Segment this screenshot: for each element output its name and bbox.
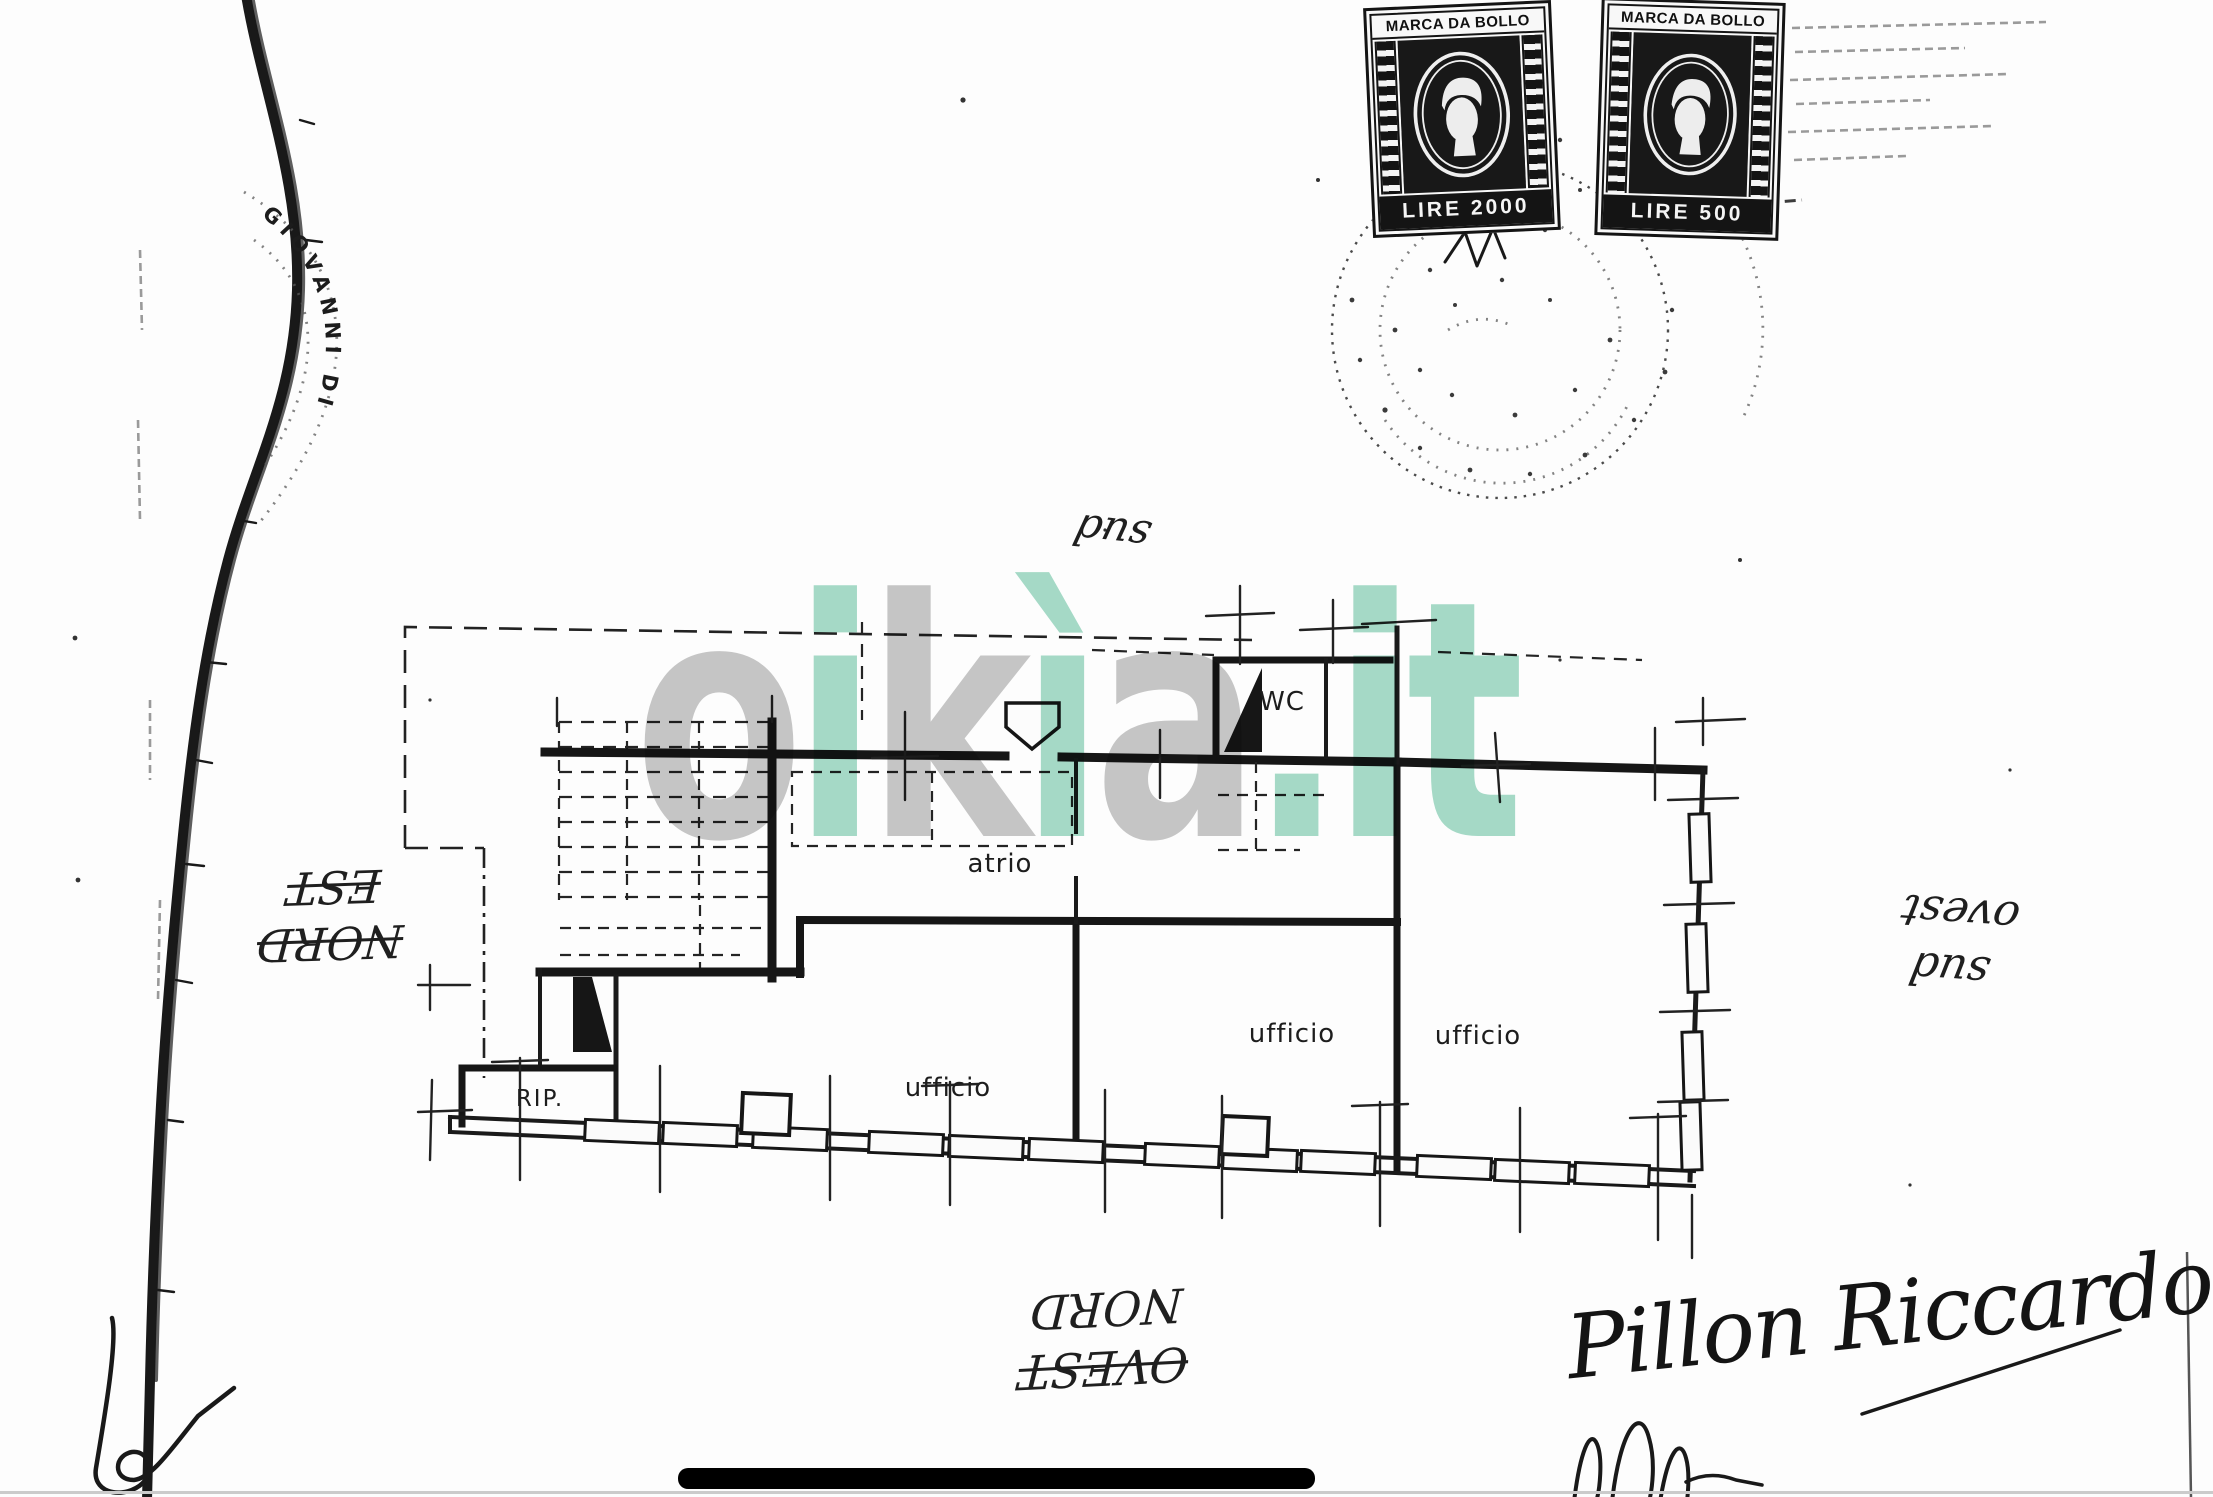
oikia-watermark: oikìa.it (634, 588, 1513, 856)
watermark-letter: a (1094, 530, 1250, 914)
stamp-effigy-icon (1398, 35, 1527, 193)
stamp-ornament-column (1521, 34, 1549, 188)
paraph-squiggle (96, 1318, 234, 1493)
watermark-letter: i (793, 530, 867, 914)
revenue-stamp-lire-2000: MARCA DA BOLLO LIRE 2000 (1363, 0, 1561, 238)
door-swing-triangle (573, 977, 612, 1052)
partial-signature-stroke (1574, 1423, 1762, 1497)
room-label-ufficio-3: ufficio (1435, 1021, 1521, 1051)
scan-bottom-edge (0, 1491, 2213, 1494)
orientation-note-ovest-sud-right: sud ovest (1819, 876, 2090, 1007)
orientation-note-est-nord-left: NORD EST (218, 854, 446, 975)
stamp-value-text: LIRE 2000 (1379, 189, 1552, 229)
room-label-ufficio-2: ufficio (1249, 1019, 1335, 1049)
revenue-stamp-lire-500: MARCA DA BOLLO LIRE 500 (1594, 0, 1785, 241)
room-label-rip: RIP. (516, 1086, 564, 1112)
stamp-ornament-column (1606, 31, 1632, 193)
stamp-ornament-column (1749, 36, 1775, 198)
room-label-ufficio-1: ufficio (905, 1073, 991, 1103)
redaction-bar (678, 1468, 1315, 1489)
orientation-note-ovest-nord-bottom: OVEST NORD (942, 1269, 1268, 1404)
watermark-letter: o (634, 530, 793, 914)
watermark-letter: ì (1020, 530, 1094, 914)
watermark-suffix: .it (1250, 530, 1514, 914)
bottom-wall-windows (585, 1093, 1650, 1187)
stamp-effigy-icon (1629, 32, 1752, 197)
watermark-letter: k (867, 530, 1020, 914)
scanned-cadastral-plan-page: WC atrio ufficio ufficio ufficio RIP. GI… (0, 0, 2213, 1497)
stamp-value-text: LIRE 500 (1603, 194, 1772, 232)
